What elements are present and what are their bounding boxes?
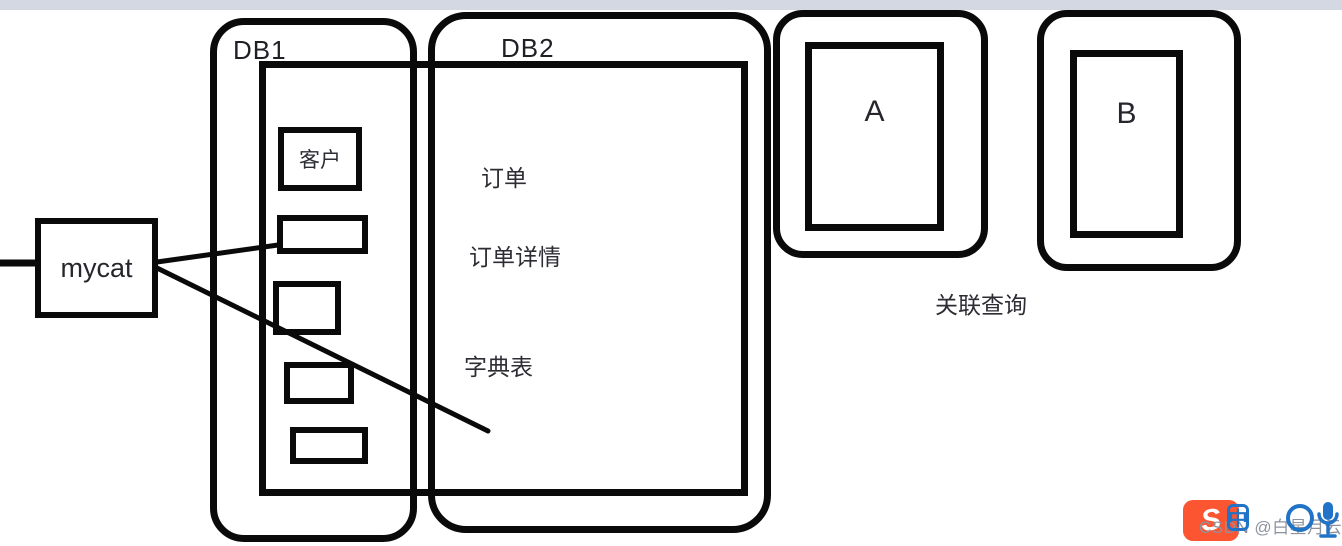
table-placeholder-box-2 (273, 281, 341, 335)
db2-label: DB2 (501, 33, 555, 64)
zhong-badge-icon: 中 (1227, 504, 1249, 531)
diagram-canvas: mycat DB1 DB2 客户 订单 订单详情 字典表 A B 关联查询 S … (0, 0, 1342, 546)
customer-table-label: 客户 (299, 144, 341, 174)
node-b-box: B (1070, 50, 1183, 238)
circle-badge-icon (1286, 504, 1314, 532)
table-label-order-details: 订单详情 (469, 238, 561, 272)
table-label-orders: 订单 (481, 159, 527, 193)
top-window-strip (0, 0, 1342, 10)
node-b-label: B (1116, 97, 1136, 131)
microphone-icon (1316, 498, 1340, 542)
csdn-watermark: S CSDN @白星月云 中 (1178, 495, 1342, 546)
mycat-node: mycat (35, 218, 158, 318)
node-a-box: A (805, 42, 944, 231)
mycat-label: mycat (60, 253, 132, 284)
zhong-badge-glyph: 中 (1229, 504, 1248, 531)
customer-table-box: 客户 (278, 127, 362, 191)
table-placeholder-box-4 (290, 427, 368, 464)
table-label-dictionary: 字典表 (464, 348, 533, 382)
join-query-caption: 关联查询 (935, 286, 1027, 320)
table-placeholder-box-3 (284, 362, 354, 404)
table-placeholder-box-1 (277, 215, 368, 254)
node-a-label: A (864, 95, 884, 129)
